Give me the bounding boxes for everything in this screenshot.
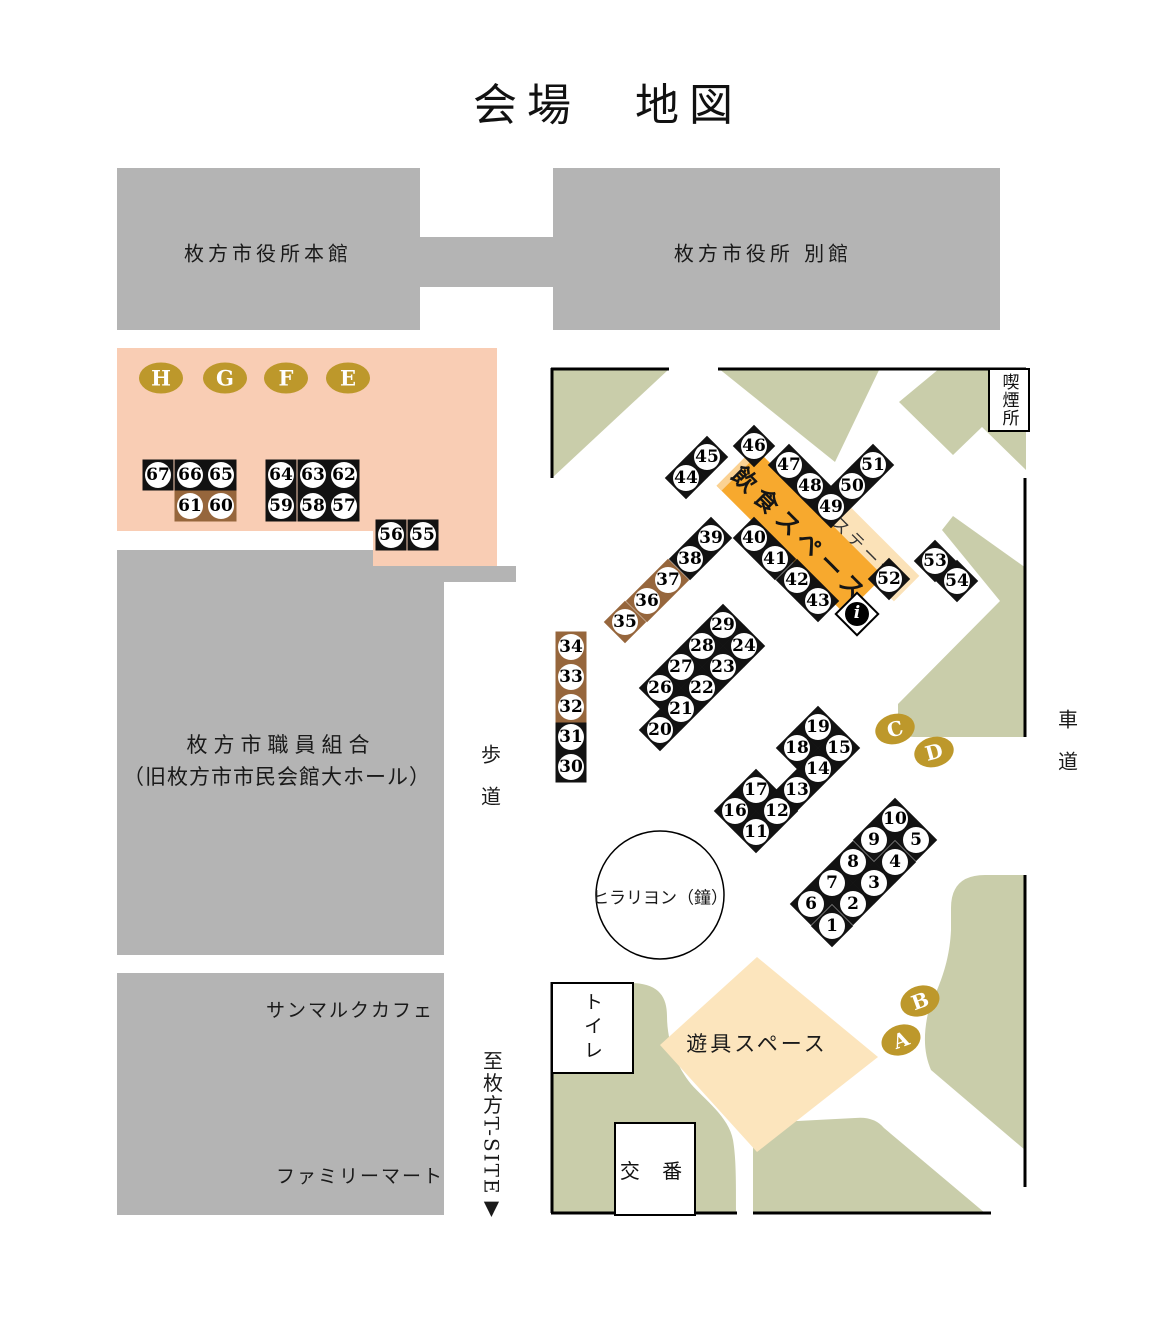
booth-52-number: 52 bbox=[876, 566, 902, 592]
booth-49-number: 49 bbox=[818, 494, 844, 520]
green-bottom-right-blob bbox=[925, 875, 1025, 1150]
toilet-box-label: トイレ bbox=[579, 992, 606, 1064]
booth-57-number: 57 bbox=[331, 493, 357, 519]
info-icon: i bbox=[845, 602, 869, 626]
booth-1-number: 1 bbox=[819, 913, 845, 939]
booth-32-number: 32 bbox=[558, 694, 584, 720]
booth-35-number: 35 bbox=[612, 609, 638, 635]
booth-67-number: 67 bbox=[145, 462, 171, 488]
booth-40-number: 40 bbox=[741, 525, 767, 551]
booth-27-number: 27 bbox=[668, 654, 694, 680]
kitsuenjo-box: 喫煙所 bbox=[988, 368, 1030, 432]
booth-22-number: 22 bbox=[689, 675, 715, 701]
booth-15-number: 15 bbox=[826, 735, 852, 761]
booth-48-number: 48 bbox=[797, 473, 823, 499]
booth-5-number: 5 bbox=[903, 827, 929, 853]
booth-41-number: 41 bbox=[762, 546, 788, 572]
booth-66-number: 66 bbox=[177, 462, 203, 488]
booth-60-number: 60 bbox=[208, 493, 234, 519]
area-badge-F: F bbox=[264, 363, 308, 394]
booth-8-number: 8 bbox=[840, 849, 866, 875]
booth-2-number: 2 bbox=[840, 891, 866, 917]
booth-34-number: 34 bbox=[558, 634, 584, 660]
shadou-label: 車道 bbox=[1053, 709, 1082, 793]
booth-43-number: 43 bbox=[805, 588, 831, 614]
booth-44-number: 44 bbox=[673, 465, 699, 491]
booth-21-number: 21 bbox=[668, 696, 694, 722]
booth-10-number: 10 bbox=[882, 806, 908, 832]
bldg-familymart-label: ファミリーマート bbox=[276, 1162, 444, 1189]
booth-64-number: 64 bbox=[268, 462, 294, 488]
hodou-label: 歩道 bbox=[476, 744, 505, 828]
booth-23-number: 23 bbox=[710, 654, 736, 680]
booth-24-number: 24 bbox=[731, 633, 757, 659]
booth-30-number: 30 bbox=[558, 754, 584, 780]
booth-4-number: 4 bbox=[882, 849, 908, 875]
venue-map-canvas: 会場 地図 ステージ 飲食スペース i bbox=[0, 0, 1157, 1329]
booth-26-number: 26 bbox=[647, 675, 673, 701]
bldg-kumiai-label-line2: （旧枚方市市民会館大ホール） bbox=[123, 761, 431, 791]
booth-17-number: 17 bbox=[743, 777, 769, 803]
booth-51-number: 51 bbox=[860, 452, 886, 478]
area-badge-E: E bbox=[326, 363, 370, 394]
booth-18-number: 18 bbox=[784, 735, 810, 761]
bldg-bekkan-label: 枚方市役所 別館 bbox=[674, 238, 852, 267]
page-title: 会場 地図 bbox=[473, 69, 743, 133]
booth-39-number: 39 bbox=[698, 525, 724, 551]
booth-58-number: 58 bbox=[300, 493, 326, 519]
booth-6-number: 6 bbox=[798, 891, 824, 917]
booth-14-number: 14 bbox=[805, 756, 831, 782]
booth-61-number: 61 bbox=[177, 493, 203, 519]
booth-53-number: 53 bbox=[922, 548, 948, 574]
booth-56-number: 56 bbox=[378, 522, 404, 548]
booth-47-number: 47 bbox=[776, 452, 802, 478]
bell-label: ヒラリヨン（鐘） bbox=[592, 884, 728, 909]
bldg-sanmarc-label: サンマルクカフェ bbox=[266, 996, 434, 1023]
booth-11-number: 11 bbox=[743, 819, 769, 845]
booth-3-number: 3 bbox=[861, 870, 887, 896]
booth-28-number: 28 bbox=[689, 633, 715, 659]
booth-12-number: 12 bbox=[764, 798, 790, 824]
green-top-left-triangle bbox=[552, 370, 668, 478]
yuugu-label: 遊具スペース bbox=[686, 1028, 827, 1058]
booth-29-number: 29 bbox=[710, 612, 736, 638]
kouban-box: 交 番 bbox=[614, 1122, 696, 1216]
booth-19-number: 19 bbox=[805, 714, 831, 740]
booth-9-number: 9 bbox=[861, 827, 887, 853]
booth-20-number: 20 bbox=[647, 717, 673, 743]
booth-50-number: 50 bbox=[839, 473, 865, 499]
booth-13-number: 13 bbox=[784, 777, 810, 803]
booth-62-number: 62 bbox=[331, 462, 357, 488]
kitsuenjo-box-label: 喫煙所 bbox=[997, 373, 1022, 427]
kouban-box-label: 交 番 bbox=[620, 1155, 690, 1184]
booth-38-number: 38 bbox=[677, 546, 703, 572]
green-right-chevron bbox=[898, 516, 1026, 737]
booth-37-number: 37 bbox=[655, 567, 681, 593]
booth-55-number: 55 bbox=[410, 522, 436, 548]
booth-33-number: 33 bbox=[558, 664, 584, 690]
area-badge-G: G bbox=[203, 363, 247, 394]
bldg-honkan-label: 枚方市役所本館 bbox=[184, 238, 352, 267]
bldg-kumiai-label-line1: 枚方市職員組合 bbox=[187, 729, 376, 759]
booth-54-number: 54 bbox=[944, 568, 970, 594]
booth-42-number: 42 bbox=[784, 567, 810, 593]
booth-36-number: 36 bbox=[634, 588, 660, 614]
area-badge-H: H bbox=[139, 363, 183, 394]
booth-59-number: 59 bbox=[268, 493, 294, 519]
green-bottom-middle-blob bbox=[753, 1118, 985, 1213]
booth-16-number: 16 bbox=[722, 798, 748, 824]
booth-63-number: 63 bbox=[300, 462, 326, 488]
booth-31-number: 31 bbox=[558, 724, 584, 750]
booth-7-number: 7 bbox=[819, 870, 845, 896]
tsite-label: 至枚方T-SITE▼ bbox=[478, 1050, 507, 1221]
booth-65-number: 65 bbox=[208, 462, 234, 488]
toilet-box: トイレ bbox=[551, 982, 634, 1074]
booth-45-number: 45 bbox=[694, 444, 720, 470]
booth-46-number: 46 bbox=[741, 433, 767, 459]
